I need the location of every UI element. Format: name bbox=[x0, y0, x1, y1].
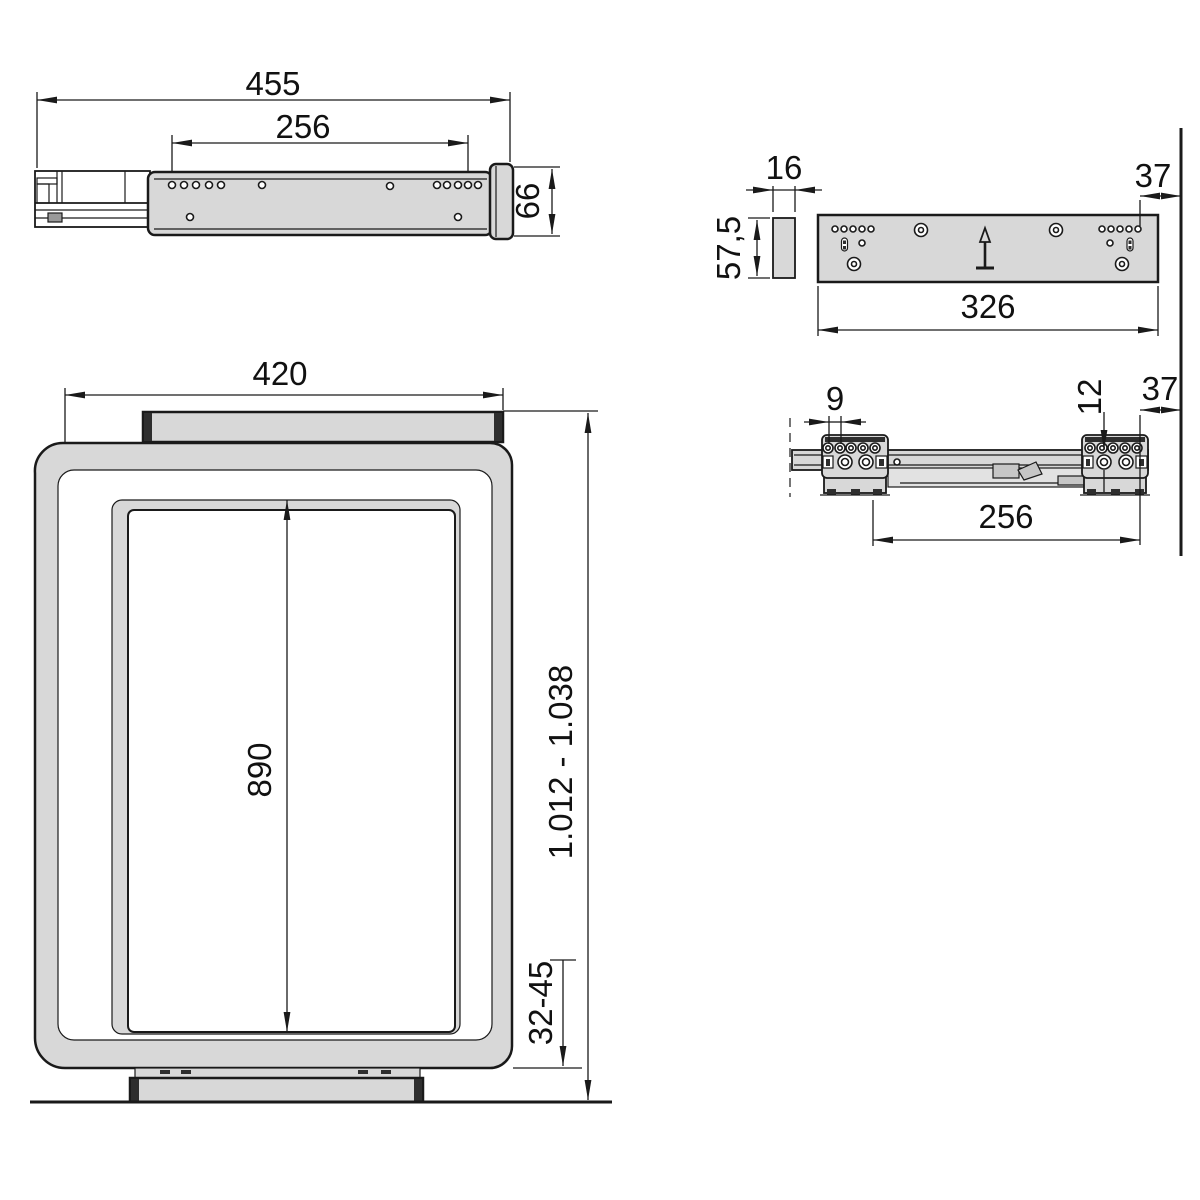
dim-label-37-mid: 37 bbox=[1142, 370, 1179, 407]
dim-label-16: 16 bbox=[766, 149, 803, 186]
dim-label-326: 326 bbox=[960, 288, 1015, 325]
hole bbox=[181, 182, 188, 189]
dim-hole-spacing: 256 bbox=[172, 108, 468, 180]
technical-drawing: 455 256 bbox=[0, 0, 1200, 1200]
dim-label-9: 9 bbox=[826, 380, 844, 417]
hole bbox=[859, 226, 865, 232]
hole bbox=[841, 226, 847, 232]
dim-panel-width: 326 bbox=[818, 286, 1158, 336]
hole bbox=[387, 183, 394, 190]
hole bbox=[455, 182, 462, 189]
hole bbox=[1099, 226, 1105, 232]
dim-label-890: 890 bbox=[241, 742, 278, 797]
hole bbox=[1107, 240, 1113, 246]
hole bbox=[894, 459, 900, 465]
slide-body bbox=[148, 172, 492, 235]
slide-side-view: 455 256 bbox=[35, 65, 560, 239]
dim-label-256: 256 bbox=[275, 108, 330, 145]
dim-label-455: 455 bbox=[245, 65, 300, 102]
hole bbox=[206, 182, 213, 189]
spacer-plate bbox=[773, 218, 795, 278]
dim-total-length: 455 bbox=[37, 65, 510, 168]
hole bbox=[259, 182, 266, 189]
slide-rear-mechanism bbox=[35, 171, 150, 227]
dim-spacer-width: 16 bbox=[746, 149, 822, 212]
dim-label-37-top: 37 bbox=[1135, 157, 1172, 194]
latch-detail bbox=[48, 213, 62, 222]
hole bbox=[465, 182, 472, 189]
dim-label-420: 420 bbox=[252, 355, 307, 392]
hole bbox=[1108, 226, 1114, 232]
hole bbox=[868, 226, 874, 232]
dim-label-12: 12 bbox=[1071, 379, 1108, 416]
frame-opening bbox=[128, 510, 455, 1032]
bracket-holes-row bbox=[1085, 443, 1142, 453]
slide-top-view: 9 12 37 256 bbox=[790, 370, 1181, 546]
dim-label-57-5: 57,5 bbox=[710, 216, 747, 280]
hole bbox=[1135, 226, 1141, 232]
dim-spacer-height: 57,5 bbox=[710, 216, 770, 280]
bracket-holes-row bbox=[823, 443, 880, 453]
hole bbox=[434, 182, 441, 189]
dim-label-256-mid: 256 bbox=[978, 498, 1033, 535]
frame-front-view: 420 890 1.012 - 1.038 bbox=[30, 355, 612, 1102]
hole bbox=[1117, 226, 1123, 232]
hole bbox=[1126, 226, 1132, 232]
bracket-left bbox=[820, 435, 890, 495]
hole bbox=[832, 226, 838, 232]
hole bbox=[455, 214, 462, 221]
dim-label-1012-1038: 1.012 - 1.038 bbox=[542, 665, 579, 860]
hole bbox=[850, 226, 856, 232]
hole bbox=[218, 182, 225, 189]
hole bbox=[193, 182, 200, 189]
dim-bracket-spacing: 256 bbox=[873, 498, 1140, 546]
hole bbox=[475, 182, 482, 189]
dim-label-32-45: 32-45 bbox=[522, 961, 559, 1045]
bottom-slide-bar bbox=[130, 1068, 423, 1102]
dim-bottom-clearance: 32-45 bbox=[513, 960, 582, 1068]
latch-detail bbox=[993, 464, 1019, 478]
bottom-connector-strip bbox=[135, 1068, 420, 1078]
dim-label-66: 66 bbox=[509, 183, 546, 220]
mounting-panel bbox=[818, 215, 1158, 282]
hole bbox=[444, 182, 451, 189]
dim-height: 66 bbox=[509, 167, 560, 236]
hole bbox=[187, 214, 194, 221]
rail-lower-section bbox=[888, 468, 1084, 487]
hole bbox=[859, 240, 865, 246]
hole bbox=[169, 182, 176, 189]
